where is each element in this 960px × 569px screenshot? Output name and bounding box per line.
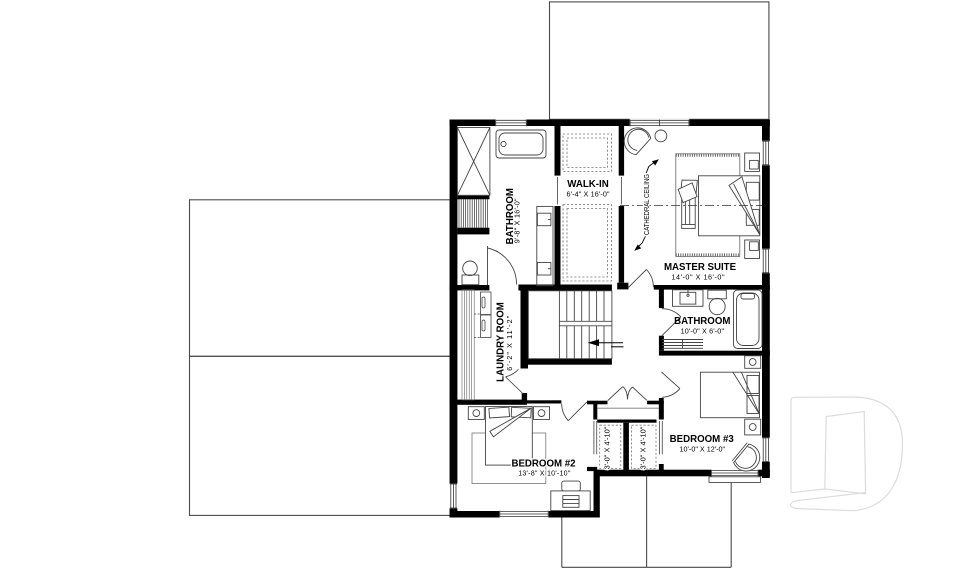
svg-text:6'-4" X 16'-0": 6'-4" X 16'-0" [567,190,610,199]
svg-text:CATHEDRAL CEILING: CATHEDRAL CEILING [644,174,651,235]
svg-text:3'-0" X 4'-10": 3'-0" X 4'-10" [604,426,611,469]
svg-text:13'-8" X 10'-10": 13'-8" X 10'-10" [518,468,571,477]
svg-text:10'-0" X 6'-0": 10'-0" X 6'-0" [681,326,725,335]
svg-text:10'-0" X 12'-0": 10'-0" X 12'-0" [680,445,726,454]
svg-text:14'-0" X 16'-0": 14'-0" X 16'-0" [672,272,725,281]
svg-text:9'-8" X 16'-0": 9'-8" X 16'-0" [513,198,522,243]
svg-text:MASTER SUITE: MASTER SUITE [664,262,737,273]
svg-text:WALK-IN: WALK-IN [567,179,608,190]
svg-text:BEDROOM #3: BEDROOM #3 [670,434,735,445]
svg-text:6'-2" X 11'-2": 6'-2" X 11'-2" [505,315,514,370]
svg-text:3'-0" X 4'-10": 3'-0" X 4'-10" [640,426,647,469]
